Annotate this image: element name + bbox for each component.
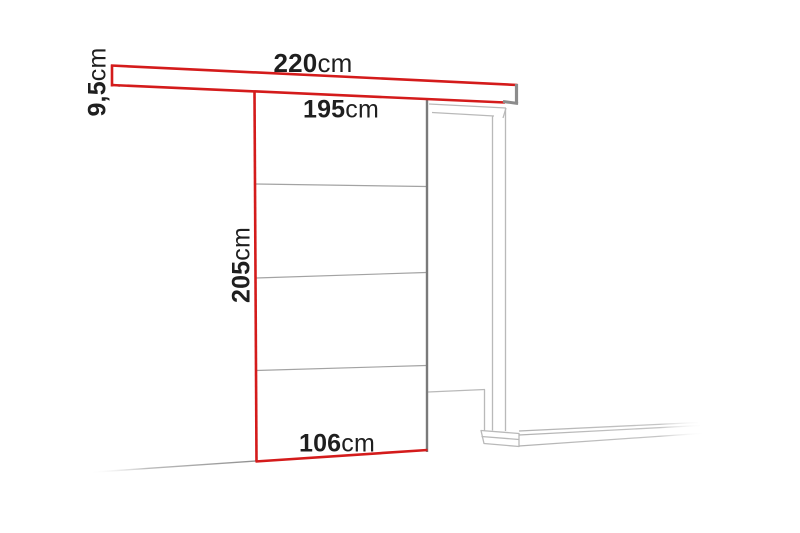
door-panel <box>254 92 428 462</box>
rail-length-value: 220 <box>273 48 317 78</box>
door-panel-face <box>254 92 427 461</box>
top-width-unit: cm <box>345 96 379 124</box>
frame-lintel-top <box>429 104 506 108</box>
doorway-floor-line <box>428 390 485 393</box>
rail-height-value: 9,5 <box>84 81 112 116</box>
rail-length-unit: cm <box>317 48 352 78</box>
top-width-value: 195 <box>303 96 345 124</box>
frame-lintel-inner <box>432 113 494 117</box>
floor-line <box>88 461 256 473</box>
door-width-unit: cm <box>341 430 375 458</box>
door-height-value: 205 <box>228 261 256 303</box>
door-width-dimension: 106cm <box>299 432 375 457</box>
top-width-dimension: 195cm <box>303 98 379 123</box>
door-height-dimension: 205cm <box>230 227 255 303</box>
dimension-diagram: 220cm 9,5cm 195cm 205cm 106cm <box>0 0 800 533</box>
door-frame <box>428 104 519 447</box>
rail-height-dimension: 9,5cm <box>86 47 111 116</box>
diagram-linework <box>0 0 800 533</box>
door-width-value: 106 <box>299 430 341 458</box>
baseboard-lines <box>519 423 707 447</box>
rail-height-unit: cm <box>84 47 112 81</box>
door-height-unit: cm <box>228 227 256 261</box>
rail-length-dimension: 220cm <box>273 50 352 76</box>
